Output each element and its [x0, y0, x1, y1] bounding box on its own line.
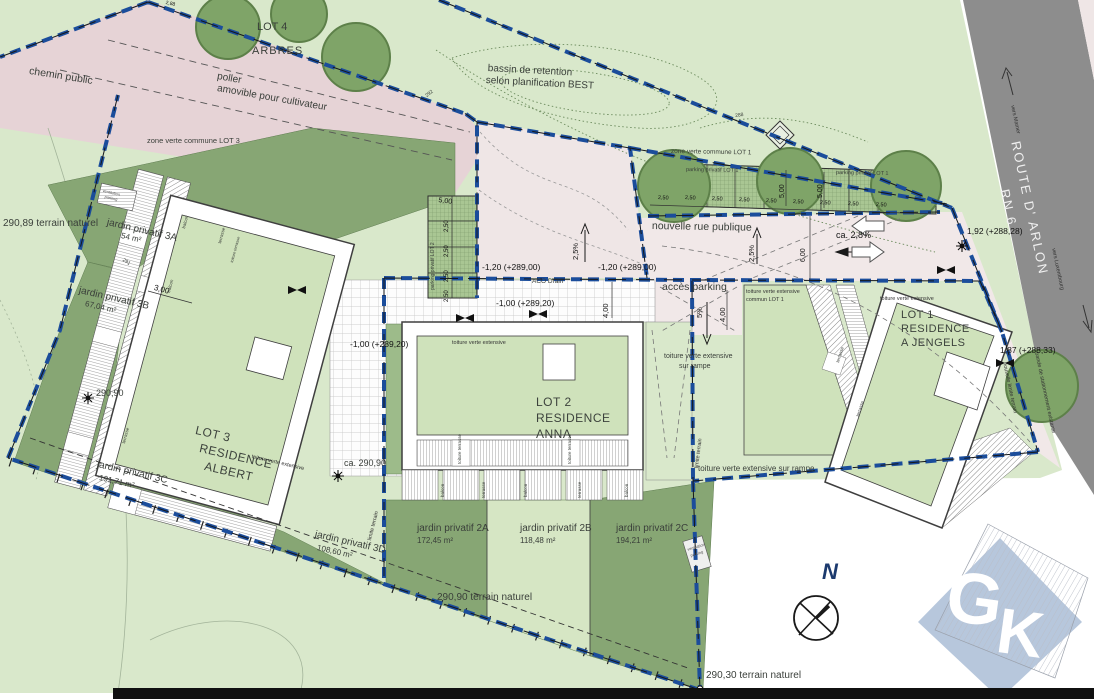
cote-120-289-label-a: -1,20 (+289,00): [482, 263, 540, 272]
niveau-290-30-tn-label: 290,30 terrain naturel: [706, 671, 801, 681]
dim-2-50-h2: 2,50: [685, 196, 696, 202]
toiture-rampe-label-2: sur rampe: [679, 363, 711, 370]
site-plan-drawing: [0, 0, 1094, 699]
lot1-title-1: LOT 1: [901, 310, 934, 321]
parking-privatif-lot1-label-b: parking privatif LOT 1: [836, 171, 889, 177]
pente-ca-2-8-label: ca. 2,8%: [836, 231, 871, 240]
parking-privatif-lot1-label-a: parking privatif LOT 1: [686, 168, 739, 174]
terrasse-label-2b: terrasse: [578, 482, 583, 498]
balcon-label-2a: balcon: [441, 484, 446, 497]
cote-187-label: 1,87 (+288,33): [1000, 346, 1056, 355]
dim-2-50-h1: 2,50: [658, 196, 669, 202]
cote-192-label: 1,92 (+288,28): [967, 227, 1023, 236]
balcon-label-2c: balcon: [625, 484, 630, 497]
tree: [322, 23, 390, 91]
dim-2-50-v1: 2,50: [444, 220, 450, 232]
acces-parking-label: accès parking: [662, 282, 727, 293]
north-compass: [794, 596, 838, 640]
title-block-edge: [113, 688, 1094, 699]
toiture-lot2-label: toiture verte extensive: [452, 341, 506, 347]
toiture-terrasse-label-2a: toiture terrasse: [458, 434, 463, 464]
dim-2-50-h9: 2,50: [876, 203, 887, 209]
zone-verte-lot1-label: zone verte commune LOT 1: [671, 149, 752, 157]
cote-100-289-label-b: -1,00 (+289,20): [496, 299, 554, 308]
dim-5-00-row-a: 5,00: [779, 184, 786, 198]
niveau-290-90-tn-label: 290,90 terrain naturel: [437, 593, 532, 603]
cote-100-289-label-a: -1,00 (+289,20): [350, 340, 408, 349]
dim-2-50-v2: 2,50: [444, 245, 450, 257]
terrasse-label-2a: terrasse: [482, 482, 487, 498]
lot4-arbres-label: ARBRES: [252, 46, 303, 57]
dim-4-00-label-b: 4,00: [719, 307, 727, 322]
dim-2-50-h7: 2,50: [820, 201, 831, 207]
balcon-label-2b: balcon: [524, 484, 529, 497]
tree: [196, 0, 260, 59]
parking-privatif-lot2-label: parking privatif LOT 2: [431, 242, 436, 290]
jardin-2c-m2: 194,21 m²: [616, 537, 652, 545]
lot1-title-2: RESIDENCE: [901, 324, 970, 335]
jardin-2a-label: jardin privatif 2A: [417, 524, 489, 534]
toiture-commun-label-2: commun LOT 1: [746, 298, 784, 304]
jardin-2b-m2: 118,48 m²: [520, 537, 555, 545]
zone-verte-lot3-label: zone verte commune LOT 3: [147, 137, 240, 145]
niveau-ca-290-90-label: ca. 290,90: [344, 459, 386, 468]
lot1-title-3: A JENGELS: [901, 338, 965, 349]
dim-2-50-h6: 2,50: [793, 200, 804, 206]
dim-6-00-label: 6,00: [800, 248, 807, 262]
gk-logo-letter-k: K: [993, 598, 1048, 668]
dim-2-50-h5: 2,50: [766, 199, 777, 205]
dim-2-50-h8: 2,50: [848, 202, 859, 208]
toiture-terrasse-label-2b: toiture terrasse: [568, 434, 573, 464]
niveau-290-90-label: 290,90: [96, 389, 124, 398]
pente-2-5-label-a: 2,5%: [572, 243, 580, 260]
aco-drain-label: ACO Drain: [532, 279, 563, 286]
dim-2-50-v4: 2,50: [444, 290, 450, 302]
rampe-verte-area: [646, 322, 692, 480]
dim-2-50-h4: 2,50: [739, 198, 750, 204]
nouvelle-rue-label: nouvelle rue publique: [652, 221, 752, 233]
lot4-label: LOT 4: [257, 22, 287, 33]
jardin-2c-label: jardin privatif 2C: [616, 524, 688, 534]
jardin-2b-label: jardin privatif 2B: [520, 524, 592, 534]
cote-120-289-label-b: -1,20 (+289,00): [598, 263, 656, 272]
dim-5-00-row-b: 5,00: [817, 184, 824, 198]
lot2-title-2: RESIDENCE: [536, 412, 611, 424]
lot2-title-1: LOT 2: [536, 396, 572, 408]
pente-2-5-label-b: 2,5%: [748, 245, 756, 262]
toiture-lot1-label: toiture verte extensive: [880, 297, 934, 303]
toiture-rampe-long-label: toiture verte extensive sur rampe: [698, 465, 815, 473]
jardin-2a-m2: 172,45 m²: [417, 537, 453, 545]
toiture-rampe-label-1: toiture verte extensive: [664, 353, 732, 360]
dim-4-00-label-a: 4,00: [602, 303, 610, 318]
niveau-290-89-label: 290,89 terrain naturel: [3, 219, 98, 229]
pente-5-label: 5%: [696, 307, 704, 318]
toiture-commun-label-1: toiture verte extensive: [746, 290, 800, 296]
dim-2-50-v3: 2,50: [444, 270, 450, 282]
dim-2-50-h3: 2,50: [712, 197, 723, 203]
north-label: N: [822, 561, 838, 583]
site-plan-page: LOT 4 ARBRES chemin public poller amovib…: [0, 0, 1094, 699]
